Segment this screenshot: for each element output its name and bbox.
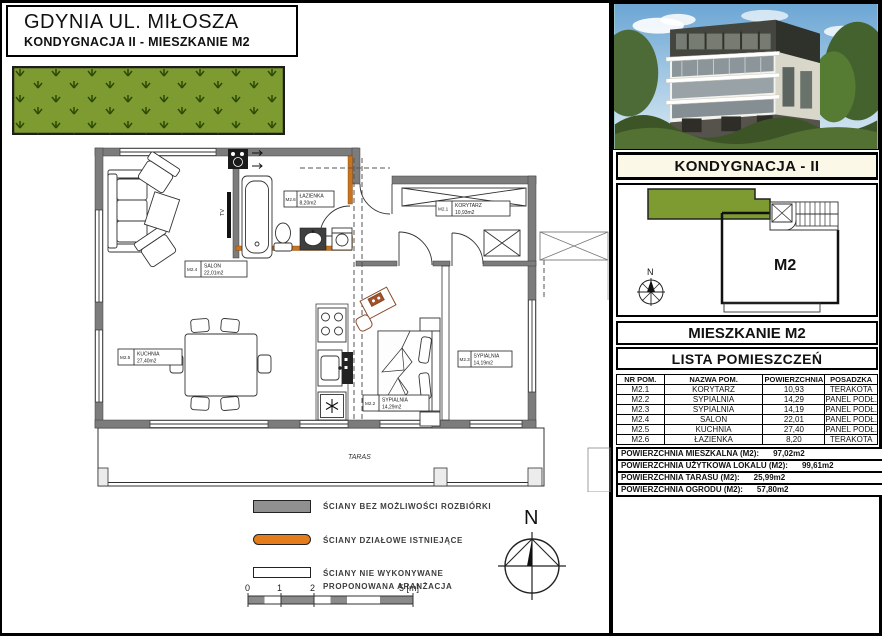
kondygnacja-header: KONDYGNACJA - II — [616, 152, 878, 180]
unit-label: M2 — [774, 257, 796, 274]
floor-plan-drawing: TARAS — [88, 136, 614, 492]
sheet-title: GDYNIA UL. MIŁOSZA — [24, 11, 296, 34]
legend-swatch-white — [253, 567, 311, 578]
svg-text:M2.5: M2.5 — [120, 355, 131, 360]
svg-text:5 [m]: 5 [m] — [399, 583, 419, 593]
table-row: M2.3SYPIALNIA14,19PANEL PODŁ. — [617, 405, 878, 415]
svg-text:14,19m2: 14,19m2 — [474, 361, 494, 367]
table-row: M2.5KUCHNIA27,40PANEL PODŁ. — [617, 425, 878, 435]
svg-text:22,01m2: 22,01m2 — [204, 271, 224, 277]
room-label-korytarz: M2.1 KORYTARZ 10,93m2 — [436, 201, 510, 216]
room-label-sypialnia-3: M2.3 SYPIALNIA 14,19m2 — [458, 351, 512, 367]
taras-label: TARAS — [348, 454, 371, 461]
svg-text:KORYTARZ: KORYTARZ — [455, 203, 482, 209]
svg-text:N: N — [647, 267, 654, 277]
scale-bar: 0 1 2 5 [m] — [243, 580, 443, 614]
coffee-table — [144, 192, 179, 232]
rooms-table-header-row: NR POM. NAZWA POM. POWIERZCHNIA POSADZKA — [617, 375, 878, 385]
legend-swatch-gray — [253, 500, 311, 513]
dining-table — [185, 334, 257, 396]
legend-item-structural: ŚCIANY BEZ MOŻLIWOŚCI ROZBIÓRKI — [253, 500, 513, 516]
mieszkanie-header: MIESZKANIE M2 — [616, 321, 878, 345]
svg-text:14,29m2: 14,29m2 — [382, 405, 402, 411]
svg-text:8,20m2: 8,20m2 — [300, 201, 317, 207]
rooms-table: NR POM. NAZWA POM. POWIERZCHNIA POSADZKA… — [616, 374, 878, 445]
toilet — [276, 223, 291, 243]
svg-text:0: 0 — [245, 583, 250, 593]
desk-proposed — [355, 287, 396, 332]
svg-text:M2.3: M2.3 — [460, 357, 471, 362]
svg-text:SALON: SALON — [204, 264, 221, 270]
sheet-subtitle: KONDYGNACJA II - MIESZKANIE M2 — [24, 35, 296, 49]
summary-ogrodu: POWIERZCHNIA OGRODU (M2):57,80m2 — [616, 483, 882, 497]
tv-label: TV — [220, 209, 226, 216]
legend-item-partition: ŚCIANY DZIAŁOWE ISTNIEJĄCE — [253, 534, 513, 550]
svg-text:SYPIALNIA: SYPIALNIA — [474, 354, 501, 360]
bath-cabinet — [332, 228, 352, 250]
room-label-salon: M2.4 SALON 22,01m2 — [185, 261, 247, 277]
svg-text:10,93m2: 10,93m2 — [455, 210, 475, 216]
washer — [228, 149, 248, 169]
svg-text:1: 1 — [277, 583, 282, 593]
kitchen-fixtures — [170, 304, 353, 420]
living-room-furniture: TV — [108, 151, 231, 269]
legend: ŚCIANY BEZ MOŻLIWOŚCI ROZBIÓRKI ŚCIANY D… — [253, 500, 513, 590]
garden-area — [12, 66, 285, 135]
svg-text:M2.2: M2.2 — [365, 401, 376, 406]
north-compass: N — [492, 502, 572, 610]
site-plan: M2 N — [618, 185, 876, 315]
site-plan-compass: N — [637, 267, 665, 306]
table-row: M2.6ŁAZIENKA8,20TERAKOTA — [617, 435, 878, 445]
table-row: M2.1KORYTARZ10,93TERAKOTA — [617, 385, 878, 395]
site-plan-box: M2 N — [616, 183, 878, 317]
svg-text:SYPIALNIA: SYPIALNIA — [382, 398, 409, 404]
stairs — [796, 202, 838, 226]
svg-text:2: 2 — [310, 583, 315, 593]
stove — [318, 308, 346, 342]
svg-text:ŁAZIENKA: ŁAZIENKA — [300, 194, 325, 200]
terrace: TARAS — [98, 428, 544, 486]
svg-text:M2.4: M2.4 — [187, 267, 198, 272]
table-row: M2.4SALON22,01PANEL PODŁ. — [617, 415, 878, 425]
tv-unit — [227, 192, 231, 238]
legend-swatch-orange — [253, 534, 311, 545]
room-label-lazienka: M2.6 ŁAZIENKA 8,20m2 — [284, 191, 334, 207]
room-label-kuchnia: M2.5 KUCHNIA 27,40m2 — [118, 349, 182, 365]
lista-header: LISTA POMIESZCZEŃ — [616, 347, 878, 370]
table-row: M2.2SYPIALNIA14,29PANEL PODŁ. — [617, 395, 878, 405]
svg-text:M2.1: M2.1 — [438, 207, 449, 212]
page-border-left — [0, 0, 2, 636]
svg-text:27,40m2: 27,40m2 — [137, 359, 157, 365]
title-block: GDYNIA UL. MIŁOSZA KONDYGNACJA II - MIES… — [6, 5, 298, 57]
svg-text:KUCHNIA: KUCHNIA — [137, 352, 160, 358]
room-label-sypialnia-2: M2.2 SYPIALNIA 14,29m2 — [363, 395, 429, 411]
floor-plan-sheet: GDYNIA UL. MIŁOSZA KONDYGNACJA II - MIES… — [0, 0, 882, 636]
north-label: N — [524, 507, 538, 529]
svg-text:M2.6: M2.6 — [286, 197, 297, 202]
building-photo — [613, 3, 879, 150]
